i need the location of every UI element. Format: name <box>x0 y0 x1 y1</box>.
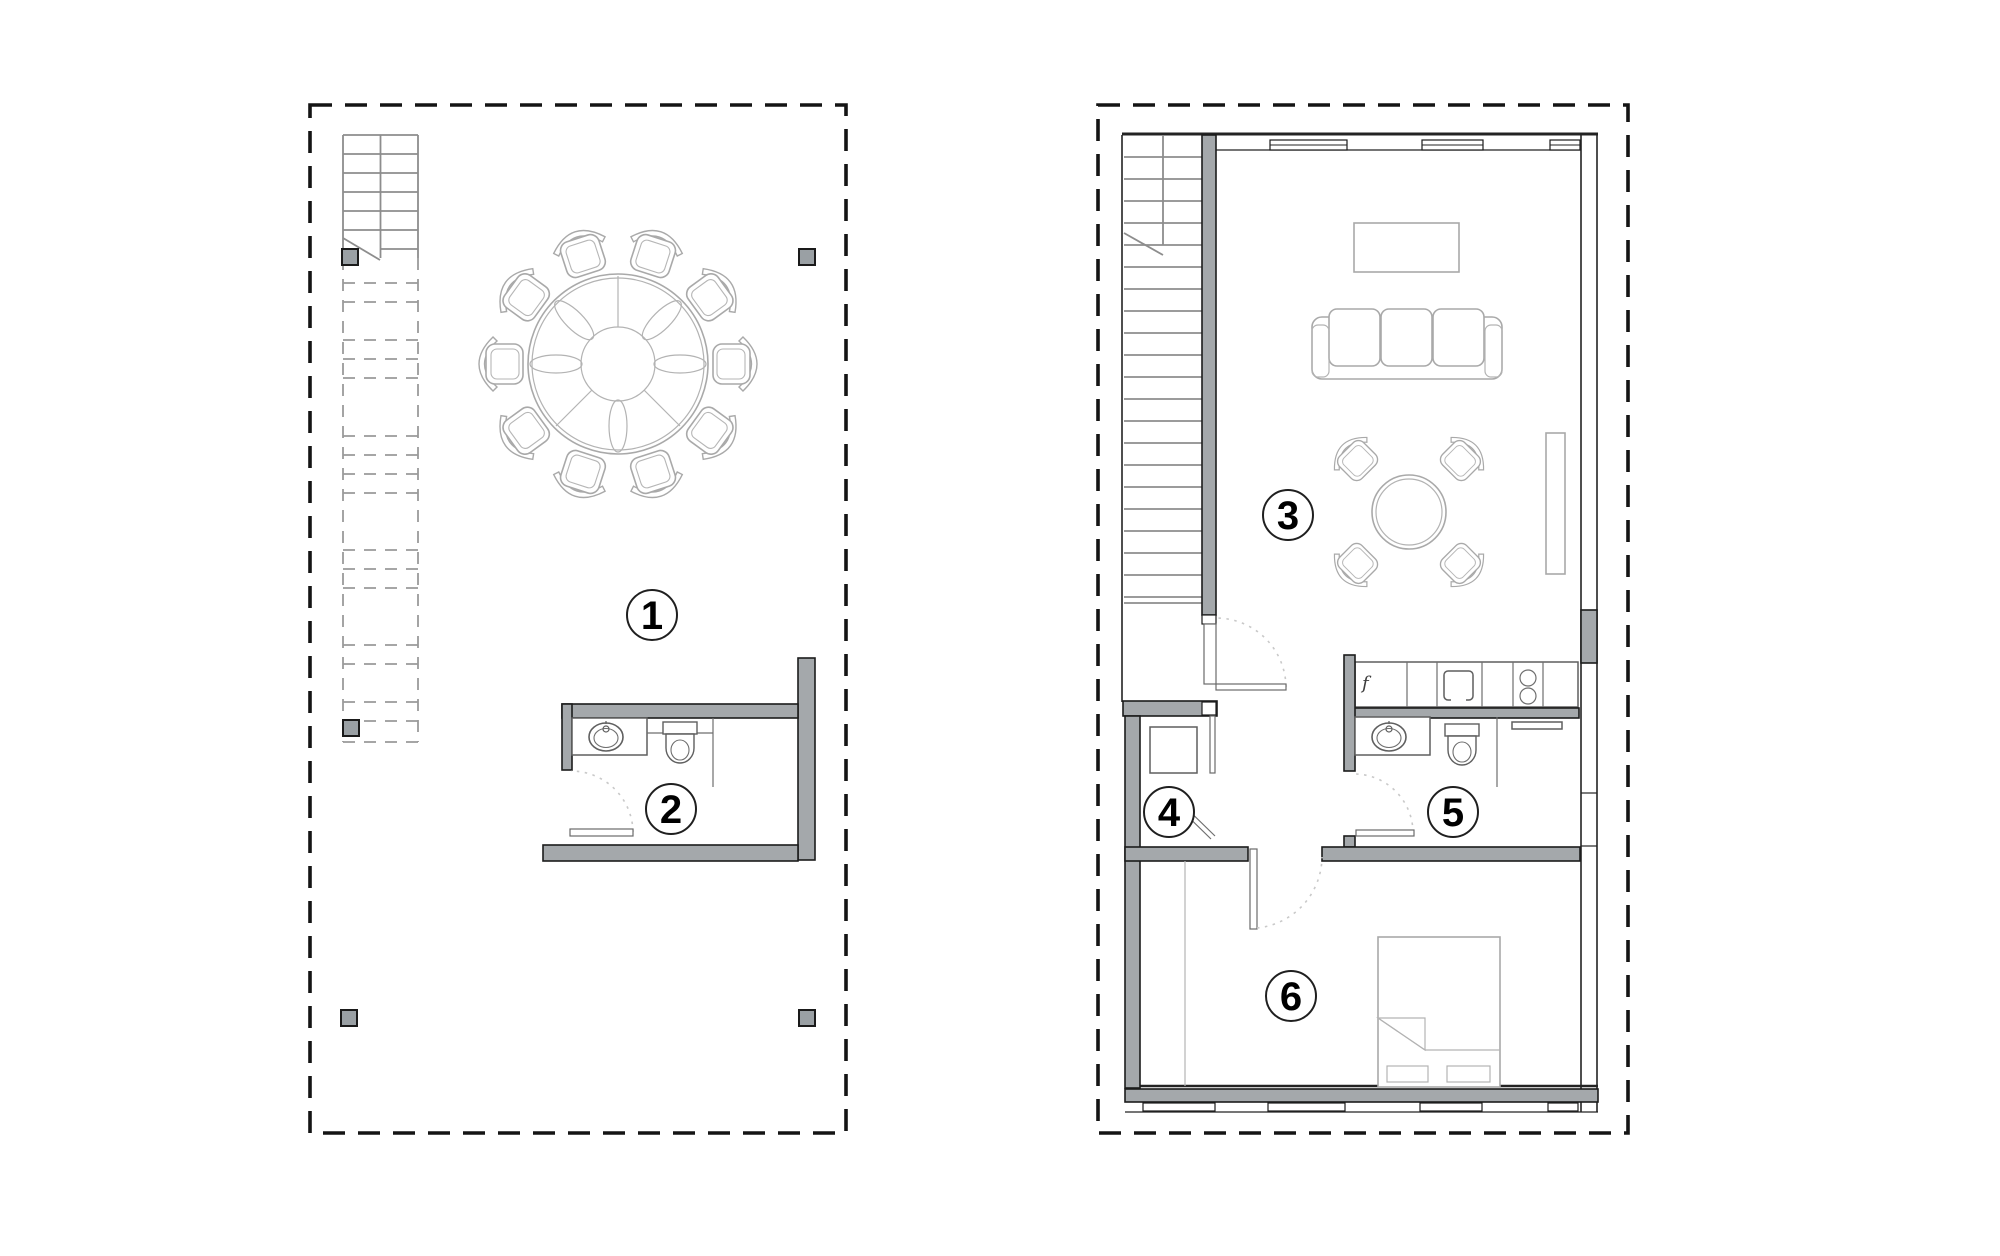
column <box>342 249 358 265</box>
door-leaf <box>1250 849 1257 929</box>
exterior-walls <box>1122 134 1598 1112</box>
floor-plan-canvas: 1 2 <box>0 0 2000 1256</box>
hall-door <box>1204 618 1286 690</box>
wall-cap <box>1202 615 1216 624</box>
wall <box>1125 1089 1598 1102</box>
toilet-icon <box>663 722 697 763</box>
window <box>1268 1103 1345 1111</box>
column <box>341 1010 357 1026</box>
wall <box>1581 610 1597 663</box>
dining-table-round-icon <box>479 223 757 504</box>
window <box>1143 1103 1215 1111</box>
room-number-1: 1 <box>641 594 663 638</box>
plan-left: 1 2 <box>310 105 846 1133</box>
room-number-6: 6 <box>1280 975 1302 1019</box>
room-label-4: 4 <box>1144 787 1194 837</box>
plan-right: f <box>1098 105 1628 1133</box>
sideboard-icon <box>1546 433 1565 574</box>
towel-rail-icon <box>1512 722 1562 729</box>
shower-tray-icon <box>1150 727 1197 773</box>
bed-icon <box>1378 937 1500 1087</box>
wall <box>562 704 572 770</box>
room-label-3: 3 <box>1263 490 1313 540</box>
wall <box>1125 847 1248 861</box>
wall-cap <box>1202 702 1216 715</box>
room-number-3: 3 <box>1277 494 1299 538</box>
stairs-right-icon <box>1124 135 1216 624</box>
wall <box>1322 847 1580 861</box>
kitchen-sink-icon <box>1444 671 1473 700</box>
door-frame <box>1210 716 1215 773</box>
wall <box>1344 836 1355 847</box>
column <box>799 1010 815 1026</box>
floor-plan-drawing: 1 2 <box>0 0 2000 1256</box>
door-leaf <box>1356 830 1414 836</box>
column <box>799 249 815 265</box>
column <box>343 720 359 736</box>
kitchen: f <box>1345 662 1579 718</box>
door-swing-arc <box>1356 774 1413 833</box>
wall <box>1125 716 1140 1088</box>
wall <box>543 845 798 861</box>
window <box>1420 1103 1482 1111</box>
dining-table-small-icon <box>1326 429 1492 595</box>
room-number-2: 2 <box>660 788 682 832</box>
room-label-1: 1 <box>627 590 677 640</box>
toilet-icon <box>1445 724 1479 765</box>
window <box>1548 1103 1578 1111</box>
door-frame <box>1204 624 1216 684</box>
wall <box>562 704 798 718</box>
room-label-5: 5 <box>1428 787 1478 837</box>
sofa-icon <box>1312 309 1502 379</box>
wall <box>1344 655 1355 771</box>
wall <box>798 658 815 860</box>
door-leaf <box>570 829 633 836</box>
stairs-left-icon <box>343 135 418 742</box>
door-swing-arc <box>1218 618 1286 687</box>
coffee-table-icon <box>1354 223 1459 272</box>
room-number-4: 4 <box>1158 791 1181 835</box>
door-leaf <box>1216 684 1286 690</box>
room-number-5: 5 <box>1442 791 1464 835</box>
bedroom-6 <box>1185 849 1500 1087</box>
stair-wall <box>1202 135 1216 615</box>
room-label-2: 2 <box>646 784 696 834</box>
door-swing-arc <box>1257 857 1322 928</box>
room-label-6: 6 <box>1266 971 1316 1021</box>
door-swing-arc <box>571 771 633 832</box>
